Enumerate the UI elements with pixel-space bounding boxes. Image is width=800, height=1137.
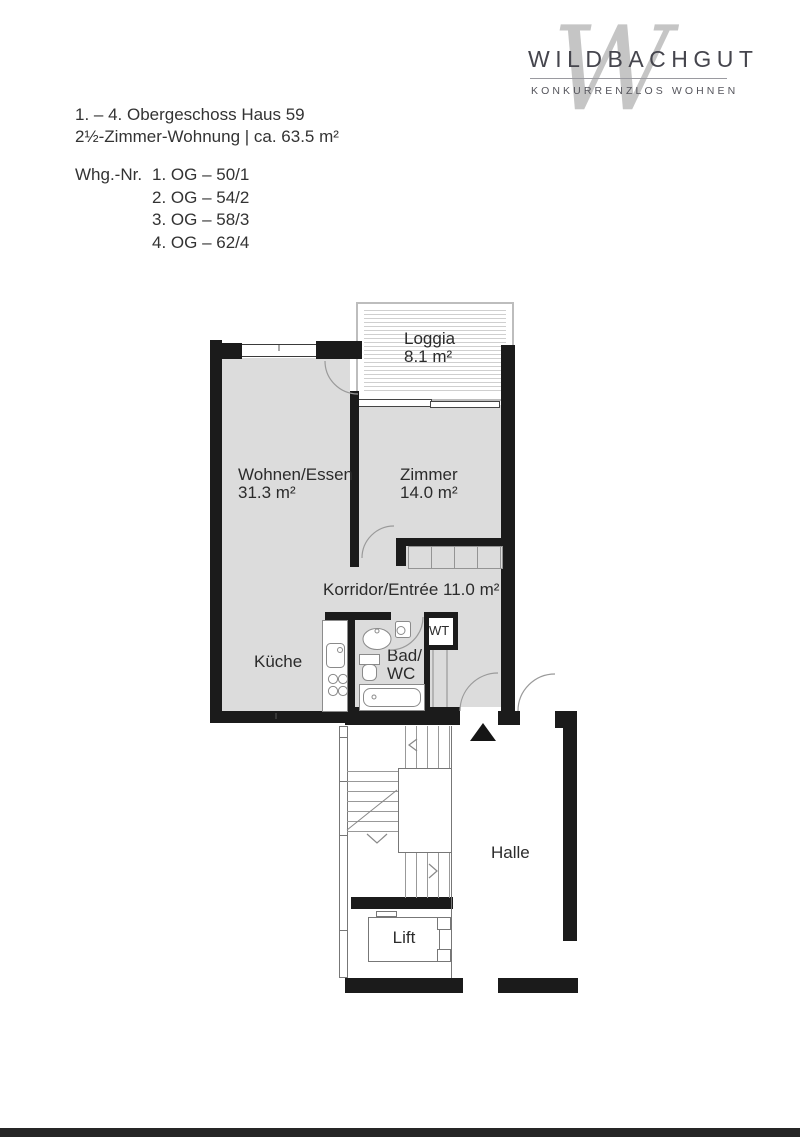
door-arc-halle bbox=[518, 674, 555, 711]
stairwell-left-wall bbox=[339, 726, 348, 978]
wall-zimmer-korridor bbox=[396, 538, 503, 546]
apartment-number-block: Whg.-Nr. 1. OG – 50/1 2. OG – 54/2 3. OG… bbox=[75, 164, 249, 254]
wall-halle-bottom bbox=[498, 978, 578, 993]
stairwell-wall-tick bbox=[340, 781, 347, 782]
label-loggia: Loggia 8.1 m² bbox=[404, 330, 455, 366]
wall-bottom-kueche bbox=[210, 711, 345, 723]
loggia-sliding-door-right bbox=[430, 401, 500, 408]
window-wohnen-top bbox=[242, 344, 316, 357]
apartment-number-entry: 2. OG – 54/2 bbox=[152, 187, 249, 210]
bad-line2: WC bbox=[387, 665, 422, 683]
wall-zimmer-door-stub bbox=[396, 538, 406, 566]
bad-line1: Bad/ bbox=[387, 647, 422, 665]
entrance-marker-triangle bbox=[470, 723, 496, 741]
entry-corridor-floor bbox=[452, 620, 501, 707]
zimmer-name: Zimmer bbox=[400, 466, 458, 484]
apartment-number-entry: 1. OG – 50/1 bbox=[152, 164, 249, 187]
label-bad-wc: Bad/ WC bbox=[387, 647, 422, 683]
wall-top-left-segment bbox=[210, 343, 242, 359]
apartment-number-label: Whg.-Nr. bbox=[75, 164, 152, 254]
stair-flight-top bbox=[405, 726, 451, 768]
header-line-2: 2½-Zimmer-Wohnung | ca. 63.5 m² bbox=[75, 126, 339, 148]
apartment-number-entry: 3. OG – 58/3 bbox=[152, 209, 249, 232]
label-halle: Halle bbox=[491, 844, 530, 862]
stair-landing bbox=[398, 768, 452, 853]
built-in-wardrobe bbox=[408, 546, 503, 569]
label-korridor: Korridor/Entrée 11.0 m² bbox=[323, 581, 499, 599]
loggia-sliding-door-left bbox=[358, 399, 432, 407]
stairwell-wall-tick bbox=[340, 835, 347, 836]
zimmer-door-opening-floor bbox=[358, 538, 396, 546]
wall-bottom-bad-entry bbox=[345, 707, 460, 725]
wall-right-exterior bbox=[501, 345, 515, 717]
bottom-edge-bar bbox=[0, 1128, 800, 1137]
wall-top-right-segment bbox=[316, 341, 362, 359]
wohnen-name: Wohnen/Essen bbox=[238, 466, 353, 484]
wall-entry-center-jamb bbox=[498, 711, 520, 725]
stair-flight-left bbox=[347, 771, 398, 837]
lift-jamb-bottom bbox=[437, 949, 451, 962]
wall-stairwell-bottom bbox=[345, 978, 463, 993]
stair-flight-bottom bbox=[405, 853, 451, 898]
label-wohnen-essen: Wohnen/Essen 31.3 m² bbox=[238, 466, 353, 502]
wall-bad-top bbox=[325, 612, 391, 620]
header-block: 1. – 4. Obergeschoss Haus 59 2½-Zimmer-W… bbox=[75, 104, 339, 148]
loggia-name: Loggia bbox=[404, 330, 455, 348]
stairwell-wall-tick bbox=[340, 737, 347, 738]
label-wt: WT bbox=[429, 622, 449, 640]
label-kueche: Küche bbox=[254, 653, 302, 671]
apartment-number-entry: 4. OG – 62/4 bbox=[152, 232, 249, 255]
floor-plan-page: W WILDBACHGUT KONKURRENZLOS WOHNEN 1. – … bbox=[0, 0, 800, 1137]
stairwell-wall-tick bbox=[340, 930, 347, 931]
zimmer-area: 14.0 m² bbox=[400, 484, 458, 502]
loggia-area: 8.1 m² bbox=[404, 348, 455, 366]
wohnen-area: 31.3 m² bbox=[238, 484, 353, 502]
logo-divider bbox=[530, 78, 727, 79]
logo-brand: WILDBACHGUT bbox=[528, 46, 732, 73]
kitchen-counter bbox=[322, 620, 348, 712]
apartment-number-list: 1. OG – 50/1 2. OG – 54/2 3. OG – 58/3 4… bbox=[152, 164, 249, 254]
wall-halle-right bbox=[563, 711, 577, 941]
wall-kueche-bad bbox=[348, 612, 355, 716]
korridor-name: Korridor/Entrée bbox=[323, 580, 438, 599]
wall-lift-top bbox=[351, 897, 453, 909]
wall-left-exterior bbox=[210, 340, 222, 723]
wall-bad-right bbox=[424, 644, 430, 716]
header-line-1: 1. – 4. Obergeschoss Haus 59 bbox=[75, 104, 339, 126]
label-lift: Lift bbox=[368, 929, 440, 947]
korridor-area: 11.0 m² bbox=[443, 580, 499, 599]
logo-tagline: KONKURRENZLOS WOHNEN bbox=[531, 85, 738, 97]
label-zimmer: Zimmer 14.0 m² bbox=[400, 466, 458, 502]
